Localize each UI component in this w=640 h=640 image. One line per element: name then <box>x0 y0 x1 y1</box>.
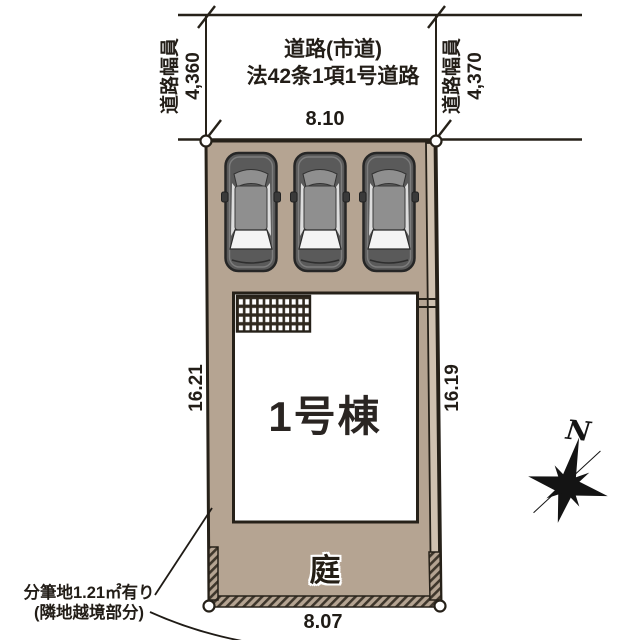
road-name-line2: 法42条1項1号道路 <box>200 63 466 90</box>
dimension-bottom: 8.07 <box>283 611 363 634</box>
car-icon <box>222 153 281 271</box>
garden-label: 庭 <box>285 545 365 590</box>
dimension-right: 16.19 <box>441 355 463 421</box>
porch-grid <box>237 296 310 332</box>
car-icon <box>291 153 350 271</box>
road-name-line1: 道路(市道) <box>200 36 466 63</box>
boundary-marker <box>204 601 215 612</box>
parked-cars <box>222 153 419 271</box>
road-width-left-text: 道路幅員 <box>159 26 182 126</box>
road-width-right-text: 道路幅員 <box>441 26 464 126</box>
subdivision-note: 分筆地1.21㎡有り (隣地越境部分) <box>10 583 168 623</box>
boundary-marker <box>431 136 442 147</box>
building-label: 1号棟 <box>233 383 417 444</box>
compass-north-label: N <box>564 415 592 448</box>
subdivision-note-line1: 分筆地1.21㎡有り <box>10 583 168 603</box>
road-width-left-label: 道路幅員 4,360 <box>159 26 205 126</box>
site-plan: 道路(市道) 法42条1項1号道路 道路幅員 4,360 道路幅員 4,370 … <box>0 0 640 640</box>
boundary-marker <box>201 136 212 147</box>
car-icon <box>360 153 419 271</box>
subdivision-note-line2: (隣地越境部分) <box>10 603 168 623</box>
road-name-label: 道路(市道) 法42条1項1号道路 <box>200 36 466 90</box>
boundary-marker <box>435 601 446 612</box>
dimension-top: 8.10 <box>285 108 365 131</box>
road-width-right-value: 4,370 <box>464 26 487 126</box>
road-width-right-label: 道路幅員 4,370 <box>441 26 487 126</box>
road-width-left-value: 4,360 <box>182 26 205 126</box>
dimension-left: 16.21 <box>185 355 207 421</box>
site-plan-drawing <box>0 0 640 640</box>
